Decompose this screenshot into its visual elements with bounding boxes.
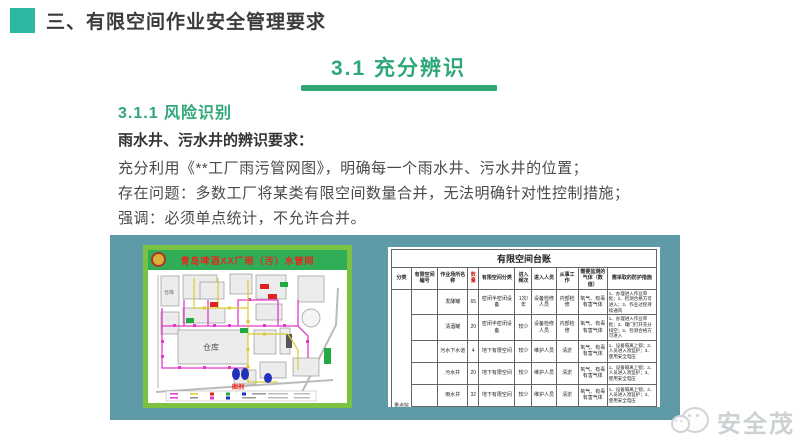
map-title: 青岛啤酒XX厂雨（污）水管网 <box>148 254 347 267</box>
column-header: 需采取的防护措施 <box>607 268 656 290</box>
table-cell: 内部检修 <box>556 289 578 315</box>
table-row: 重点监控有限空间发酵罐65密闭半密闭设备1次/年设备检修人员内部检修氧气、有毒有… <box>392 289 657 315</box>
table-cell: 较少 <box>515 362 532 384</box>
table-cell: 污水井 <box>438 362 468 384</box>
space-id-cell <box>412 340 438 362</box>
column-header: 数量 <box>468 268 479 290</box>
table-cell: 1、办理进入作业审批；2、罐门打开充分排空；3、检测合格方可进入 <box>607 315 656 341</box>
table-row: 污水下水道4地下有限空间较少维护人员清淤氧气、有毒有害气体1、设备隔离上锁；2、… <box>392 340 657 362</box>
table-cell: 污水下水道 <box>438 340 468 362</box>
table-cell: 较少 <box>515 384 532 406</box>
section-heading-wrap: 3.1 充分辨识 <box>0 52 797 91</box>
table-cell: 20 <box>468 362 479 384</box>
map-drawing: 仓库 仓库 <box>148 270 347 403</box>
column-header: 从事工作 <box>556 268 578 290</box>
content-block: 3.1.1 风险识别 雨水井、污水井的辨识要求： 充分利用《**工厂雨污管网图》… <box>118 99 718 231</box>
table-cell: 密闭半密闭设备 <box>479 289 515 315</box>
subsection-heading: 3.1.1 风险识别 <box>118 99 718 123</box>
table-cell: 清淤 <box>556 406 578 407</box>
table-cell: 雨水井 <box>438 384 468 406</box>
slide-title: 三、有限空间作业安全管理要求 <box>46 7 326 34</box>
table-cell: 维护人员 <box>532 340 556 362</box>
table-row: 集水池2地下有限空间较少维护人员清淤氧气、有毒有害气体1、设备隔离上锁；2、人员… <box>392 406 657 407</box>
body-line-3: 强调：必须单点统计，不允许合并。 <box>118 206 718 231</box>
table-cell: 清酒罐 <box>438 315 468 341</box>
figure-panel: 青岛啤酒XX厂雨（污）水管网 <box>110 235 680 420</box>
table-cell: 内部检修 <box>556 315 578 341</box>
factory-map: 青岛啤酒XX厂雨（污）水管网 <box>143 245 352 408</box>
table-cell: 较少 <box>515 340 532 362</box>
watermark: 安全茂 <box>671 403 795 439</box>
table-cell: 2 <box>468 406 479 407</box>
table-cell: 较少 <box>515 315 532 341</box>
table-row: 雨水井32地下有限空间较少维护人员清淤氧气、有毒有害气体1、设备隔离上锁；2、人… <box>392 384 657 406</box>
table-cell: 地下有限空间 <box>479 340 515 362</box>
wechat-bubbles-icon <box>671 403 713 439</box>
ledger-table: 分类有限空间编号作业场所名称数量有限空间分类进入频次进入人员从事工作需要监测的气… <box>391 267 657 407</box>
column-header: 进入频次 <box>515 268 532 290</box>
space-id-cell <box>412 315 438 341</box>
table-cell: 维护人员 <box>532 406 556 407</box>
column-header: 有限空间编号 <box>412 268 438 290</box>
table-cell: 清淤 <box>556 340 578 362</box>
space-id-cell <box>412 406 438 407</box>
table-cell: 维护人员 <box>532 384 556 406</box>
table-cell: 密闭半密闭设备 <box>479 315 515 341</box>
map-svg: 仓库 仓库 <box>148 270 347 403</box>
table-cell: 1次/年 <box>515 289 532 315</box>
table-cell: 地下有限空间 <box>479 406 515 407</box>
table-cell: 设备检修人员 <box>532 289 556 315</box>
slide-title-row: 三、有限空间作业安全管理要求 <box>10 7 326 34</box>
table-cell: 1、设备隔离上锁；2、人员进入须监护；3、使用安全电压 <box>607 406 656 407</box>
table-cell: 清淤 <box>556 362 578 384</box>
space-id-cell <box>412 362 438 384</box>
table-cell: 氧气、有毒有害气体 <box>578 406 607 407</box>
building-label: 仓库 <box>203 342 219 352</box>
space-id-cell <box>412 384 438 406</box>
ledger-table-title: 有限空间台账 <box>391 249 657 267</box>
table-cell: 65 <box>468 289 479 315</box>
map-header: 青岛啤酒XX厂雨（污）水管网 <box>148 250 347 270</box>
table-cell: 32 <box>468 384 479 406</box>
table-cell: 1、设备隔离上锁；2、人员进入须监护；3、使用安全电压 <box>607 384 656 406</box>
column-header: 进入人员 <box>532 268 556 290</box>
space-id-cell <box>412 289 438 315</box>
requirement-lead: 雨水井、污水井的辨识要求： <box>118 129 718 152</box>
table-cell: 清淤 <box>556 384 578 406</box>
table-cell: 氧气、有毒有害气体 <box>578 315 607 341</box>
watermark-label: 安全茂 <box>717 404 795 439</box>
body-line-1: 充分利用《**工厂雨污管网图》，明确每一个雨水井、污水井的位置； <box>118 156 718 181</box>
table-cell: 地下有限空间 <box>479 384 515 406</box>
table-cell: 氧气、有毒有害气体 <box>578 362 607 384</box>
column-header: 作业场所名称 <box>438 268 468 290</box>
table-cell: 设备检修人员 <box>532 315 556 341</box>
table-row: 污水井20地下有限空间较少维护人员清淤氧气、有毒有害气体1、设备隔离上锁；2、人… <box>392 362 657 384</box>
table-cell: 集水池 <box>438 406 468 407</box>
table-cell: 地下有限空间 <box>479 362 515 384</box>
table-cell: 氧气、有毒有害气体 <box>578 340 607 362</box>
title-bullet-square <box>10 8 35 33</box>
table-cell: 氧气、有毒有害气体 <box>578 384 607 406</box>
table-cell: 4 <box>468 340 479 362</box>
brewery-logo-icon <box>151 252 166 267</box>
ledger-table-wrap: 有限空间台账 分类有限空间编号作业场所名称数量有限空间分类进入频次进入人员从事工… <box>388 247 660 407</box>
table-cell: 较少 <box>515 406 532 407</box>
column-header: 分类 <box>392 268 412 290</box>
category-cell: 重点监控有限空间 <box>392 289 412 407</box>
table-cell: 氧气、有毒有害气体 <box>578 289 607 315</box>
table-cell: 1、设备隔离上锁；2、人员进入须监护；3、使用安全电压 <box>607 340 656 362</box>
building-label: 仓库 <box>164 289 174 296</box>
table-cell: 维护人员 <box>532 362 556 384</box>
section-heading: 3.1 充分辨识 <box>331 52 466 82</box>
table-cell: 1、办理进入作业审批；2、检测合格方可进入；3、作业过程持续通风 <box>607 289 656 315</box>
column-header: 需要监测的气体（数值） <box>578 268 607 290</box>
table-cell: 20 <box>468 315 479 341</box>
column-header: 有限空间分类 <box>479 268 515 290</box>
table-row: 清酒罐20密闭半密闭设备较少设备检修人员内部检修氧气、有毒有害气体1、办理进入作… <box>392 315 657 341</box>
table-cell: 发酵罐 <box>438 289 468 315</box>
map-legend-label: 图例 <box>232 383 244 391</box>
body-line-2: 存在问题：多数工厂将某类有限空间数量合并，无法明确针对性控制措施； <box>118 181 718 206</box>
table-cell: 1、设备隔离上锁；2、人员进入须监护；3、使用安全电压 <box>607 362 656 384</box>
section-underline <box>301 85 497 91</box>
